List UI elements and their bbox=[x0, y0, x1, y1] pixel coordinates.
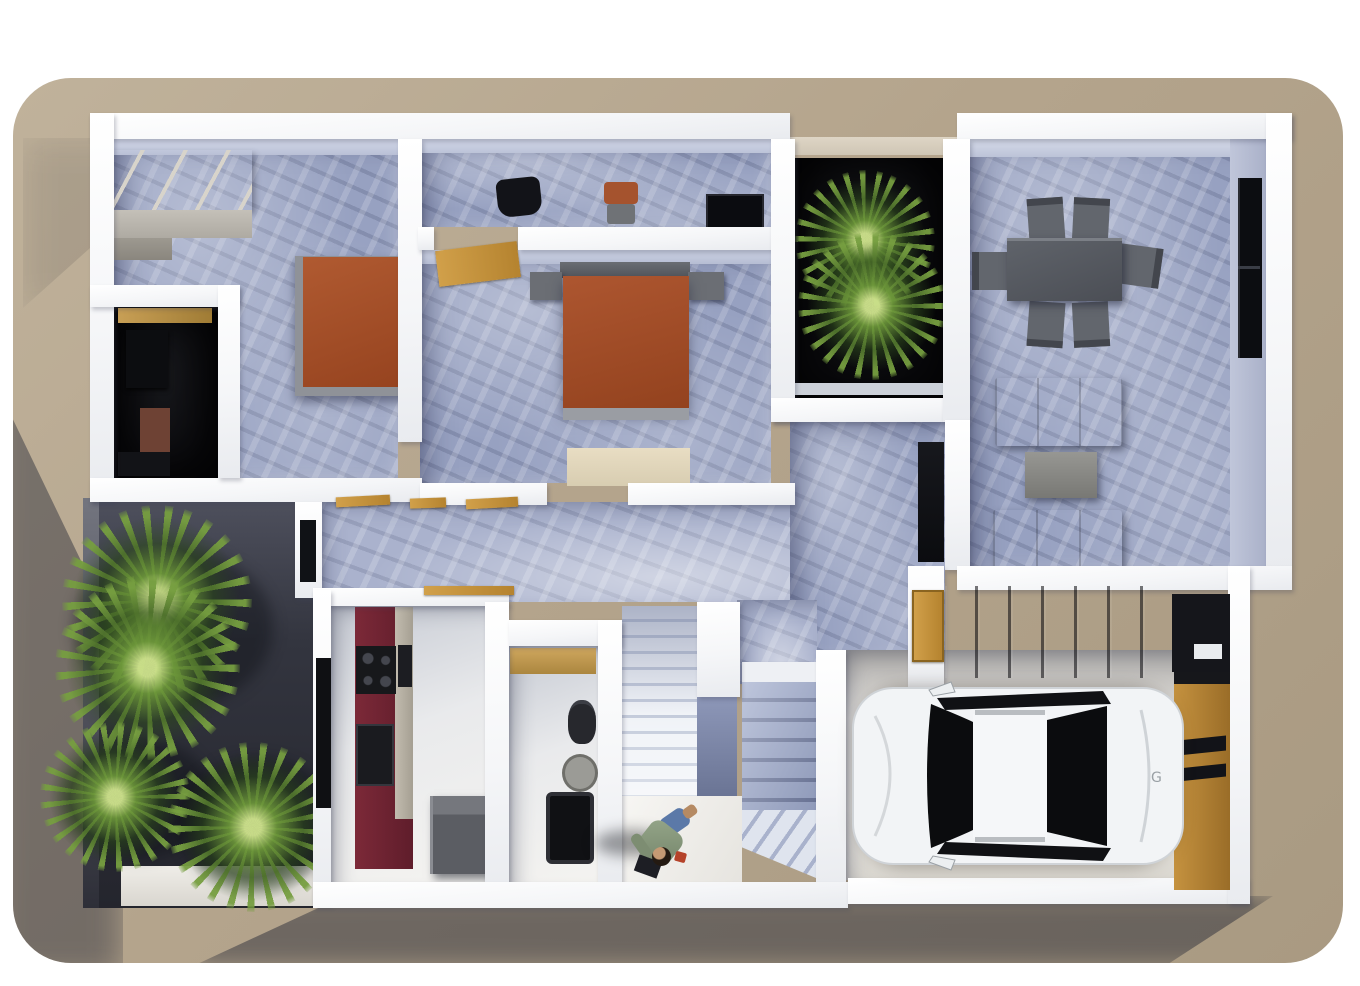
stair-winder-steps bbox=[742, 810, 816, 878]
courtyard-top-ledge bbox=[790, 137, 967, 155]
garage-utility-box bbox=[1172, 594, 1230, 672]
wardrobe-top bbox=[102, 150, 252, 210]
person-red-item bbox=[674, 851, 687, 864]
kitchen-cooktop bbox=[356, 646, 396, 694]
car-roof-rail-bottom bbox=[975, 837, 1045, 842]
hall-west-window bbox=[300, 520, 316, 582]
dining-chair-right bbox=[1115, 243, 1163, 289]
wall-stair-garage bbox=[816, 650, 846, 892]
wall-outer-left bbox=[90, 113, 114, 502]
study-orange-chair-seat bbox=[607, 204, 635, 224]
entry-dark-niche bbox=[918, 442, 944, 562]
bathroom-shower-tray bbox=[546, 792, 594, 864]
car-rear-window bbox=[1047, 706, 1107, 846]
study-orange-chair bbox=[604, 182, 638, 204]
wall-outer-right bbox=[1266, 113, 1292, 566]
car-logo: G bbox=[1151, 770, 1162, 786]
dining-table bbox=[1007, 238, 1122, 301]
bathroom-sink bbox=[562, 754, 598, 792]
bed2-foot-frame bbox=[563, 408, 689, 420]
dining-chair-bottom-2 bbox=[1072, 301, 1110, 348]
sofa-bottom bbox=[993, 510, 1122, 570]
wall-closet-east bbox=[218, 285, 240, 478]
kitchen-west-window bbox=[316, 658, 331, 808]
wall-courtyard-west bbox=[771, 139, 795, 422]
garage-panel-wall bbox=[945, 586, 1171, 678]
bed2-nightstand-left bbox=[530, 272, 562, 300]
wall-entry-east bbox=[945, 420, 970, 570]
stair-lower-ledge bbox=[742, 662, 816, 682]
wardrobe-front bbox=[102, 210, 252, 238]
kitchen-counter-item bbox=[398, 645, 412, 687]
coffee-table bbox=[1025, 452, 1097, 498]
ground-plane: G bbox=[13, 78, 1343, 963]
courtyard-bottom-ledge bbox=[795, 383, 943, 395]
wall-courtyard-south bbox=[771, 398, 967, 422]
closet-shelf bbox=[118, 308, 212, 323]
stair-upper-flight bbox=[622, 606, 700, 803]
white-car: G bbox=[845, 676, 1190, 876]
wall-dining-west bbox=[943, 139, 970, 422]
kitchen-counter-edge bbox=[395, 607, 413, 819]
wall-kitchen-east bbox=[485, 602, 509, 898]
dining-living-floor bbox=[970, 139, 1266, 566]
floor-plan-stage: G bbox=[0, 0, 1360, 986]
dining-chair-bottom-1 bbox=[1026, 301, 1065, 348]
kitchen-open-door bbox=[424, 586, 514, 595]
bed2-nightstand-right bbox=[688, 272, 724, 300]
wall-outer-bottom bbox=[313, 882, 848, 908]
garage-utility-white-plate bbox=[1194, 644, 1222, 659]
study-desk-chair bbox=[495, 176, 543, 218]
dining-chair-top-2 bbox=[1072, 197, 1110, 242]
wall-bedroom2-south-b bbox=[628, 483, 795, 505]
wall-study-south-b bbox=[518, 227, 777, 250]
car-roof-rail-top bbox=[975, 710, 1045, 715]
closet-black-cabinet bbox=[126, 330, 168, 388]
wall-bedroom-divider bbox=[398, 139, 422, 442]
wall-stair-stub bbox=[697, 602, 740, 697]
kitchen-oven bbox=[356, 724, 394, 786]
study-north-wallface bbox=[420, 139, 771, 153]
kitchen-island bbox=[430, 796, 489, 874]
closet-brown-box bbox=[140, 408, 170, 454]
bathroom-vanity bbox=[510, 648, 596, 674]
wall-study-south-a bbox=[418, 227, 434, 250]
bed1-mattress bbox=[303, 257, 407, 387]
closet-dark-unit bbox=[118, 452, 170, 476]
stair-lower-flight bbox=[742, 682, 816, 810]
entry-orange-door bbox=[912, 590, 944, 662]
hall-open-door-2 bbox=[410, 497, 446, 508]
sofa-top bbox=[995, 378, 1122, 446]
dining-north-wallface bbox=[970, 139, 1266, 157]
bedroom2-rug bbox=[567, 448, 690, 486]
bathroom-toilet bbox=[568, 700, 596, 744]
wall-outer-top-left bbox=[90, 113, 790, 139]
wall-outer-top-right bbox=[957, 113, 1292, 139]
bed2-mattress bbox=[563, 276, 689, 410]
car-roof bbox=[973, 714, 1047, 838]
person-figure bbox=[595, 800, 710, 885]
dining-window-divider bbox=[1238, 266, 1260, 269]
wall-garage-east bbox=[1228, 566, 1250, 904]
car-windshield bbox=[927, 704, 973, 848]
stair-mid-marble-wall bbox=[697, 697, 737, 797]
person-head bbox=[652, 847, 671, 866]
dining-chair-top-1 bbox=[1027, 197, 1066, 242]
